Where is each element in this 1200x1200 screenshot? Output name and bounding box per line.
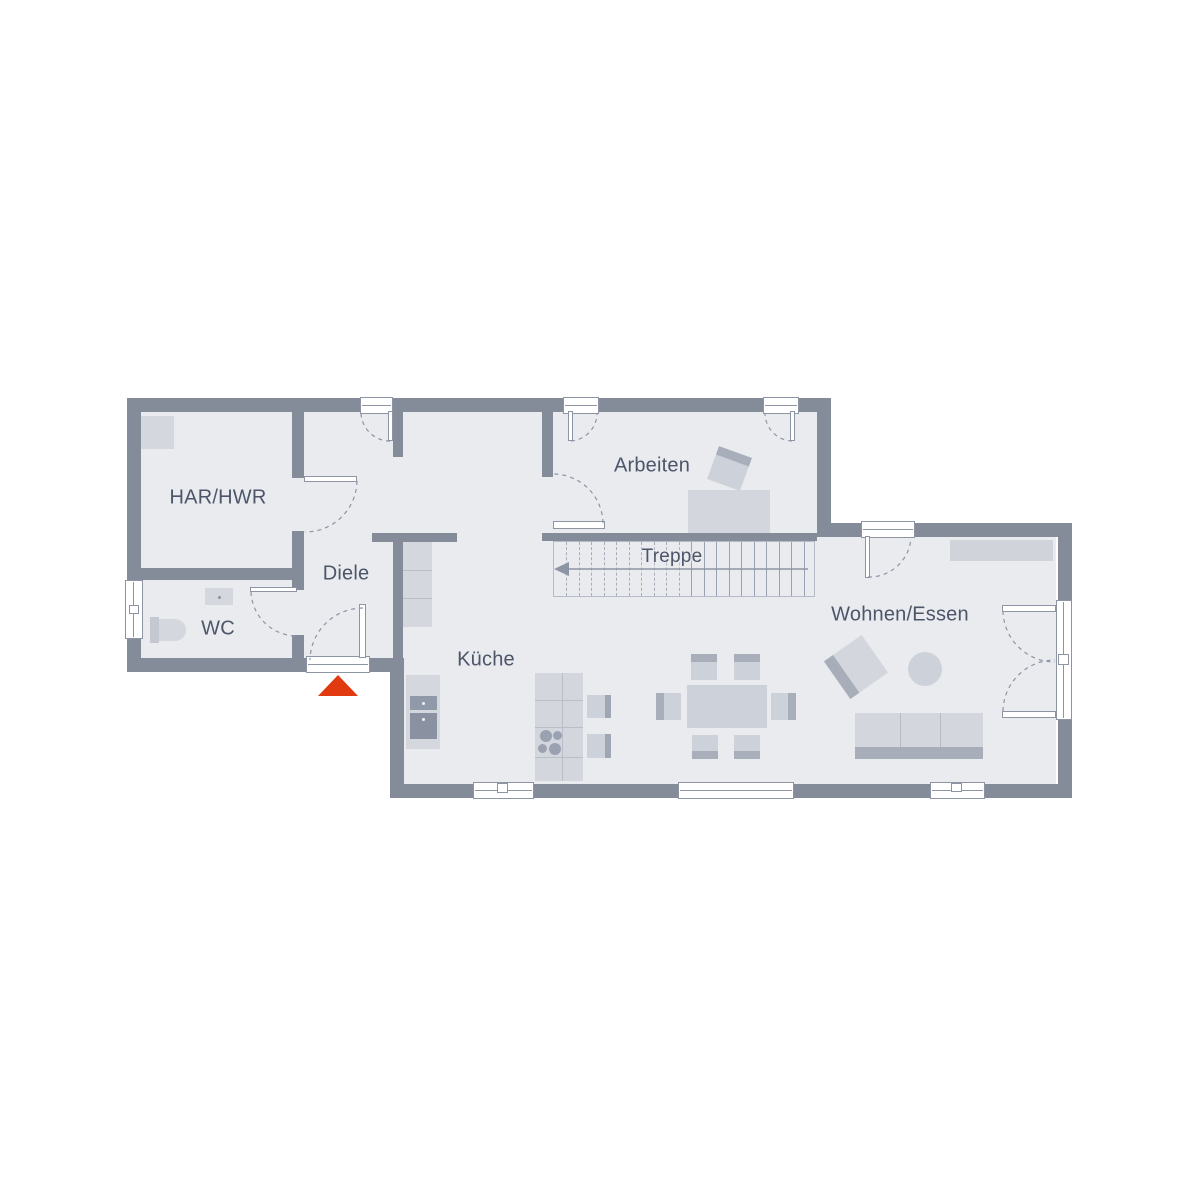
stair-tread [629,542,630,596]
cooktop-burner [538,744,547,753]
exterior-wall-upper-right [817,398,831,537]
interior-wall-arbeiten-west [542,412,553,477]
window-leaf-wohnen-top [865,536,870,578]
stair-tread [729,542,730,596]
stair-tread [741,542,742,596]
dining-chair [734,735,760,759]
dining-chair [692,735,718,759]
stair-tread [604,542,605,596]
bar-stool [587,734,611,758]
exterior-wall-top [127,398,831,412]
microwave [410,696,437,710]
bar-stool [587,695,611,718]
interior-wall-stairs-top [542,533,817,541]
toilet-cistern [150,617,159,643]
washing-machine [141,416,174,449]
interior-wall-diele-stub [393,412,403,457]
oven-tower [406,675,440,749]
dining-chair [734,654,760,680]
room-label-arbeiten: Arbeiten [614,455,690,478]
entrance-arrow [318,675,358,696]
sofa [855,713,983,759]
interior-wall-t-horizontal [372,533,457,542]
cooktop-burner [540,730,552,742]
cooktop-burner [549,743,561,755]
door-leaf-arbeiten [553,521,605,529]
door-leaf-wc [250,587,297,592]
wc-sink [205,588,233,605]
stair-tread [579,542,580,596]
stair-tread [704,542,705,596]
dining-chair [691,654,717,680]
interior-wall-wc-diele-lower [292,635,304,658]
floor-plan: HAR/HWR Diele WC Arbeiten Treppe Küche W… [0,0,1200,1200]
window-handle-wohnen [951,783,962,792]
window-leaf-arbeiten-1 [568,411,573,441]
stair-tread [779,542,780,596]
stair-tread [616,542,617,596]
stair-tread [591,542,592,596]
front-door-threshold [306,656,370,673]
interior-wall-kueche-west [393,542,403,661]
cooktop-burner [553,731,562,740]
stair-tread [716,542,717,596]
window-handle-wc [129,605,139,614]
room-label-wohnen-essen: Wohnen/Essen [831,604,969,627]
dining-chair [771,693,796,720]
oven [410,713,437,739]
sideboard [950,540,1053,561]
door-leaf-har-hwr [304,476,357,482]
french-door-leaf-top [1002,605,1056,612]
room-label-kueche: Küche [457,649,515,672]
stair-tread [766,542,767,596]
room-label-treppe: Treppe [642,546,703,568]
exterior-wall-wohnen-top [817,523,1072,537]
front-door-leaf [359,604,366,658]
stair-tread [804,542,805,596]
dining-table [687,685,767,728]
window-leaf-arbeiten-2 [790,411,795,441]
kitchen-island [535,673,583,781]
interior-wall-har-diele-lower [292,531,304,568]
side-table [908,652,942,686]
interior-wall-har-diele-upper [292,412,304,478]
desk [688,490,770,533]
interior-wall-wc-top [127,568,304,580]
kitchen-tall-cabinet [403,542,432,627]
door-leaf-diele-top [388,411,393,441]
stair-tread [791,542,792,596]
room-label-wc: WC [201,618,235,641]
dining-chair [656,693,681,720]
window-bottom-essen [678,782,794,799]
window-handle-kueche [497,783,508,793]
exterior-wall-lower-left [390,658,404,798]
stair-tread [566,542,567,596]
sofa-backrest [855,747,983,759]
french-door-handle [1058,654,1069,665]
room-label-diele: Diele [323,563,370,586]
stair-tread [754,542,755,596]
room-label-har-hwr: HAR/HWR [170,487,267,510]
french-door-leaf-bottom [1002,711,1056,718]
toilet-bowl [159,619,186,641]
